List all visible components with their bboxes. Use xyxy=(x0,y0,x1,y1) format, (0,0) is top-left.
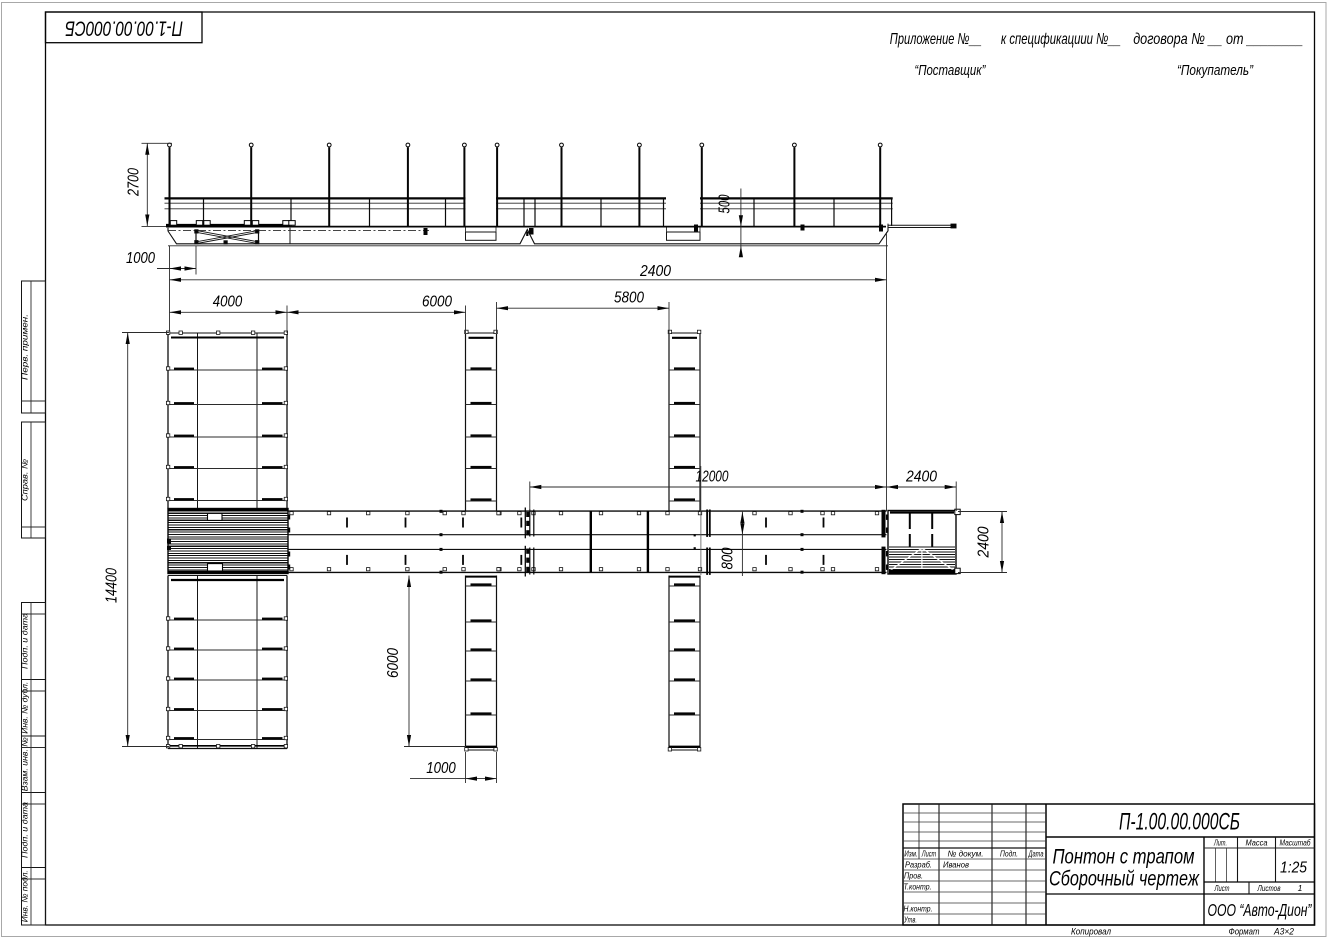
svg-text:Перв. примен.: Перв. примен. xyxy=(21,314,30,380)
svg-text:Т.контр.: Т.контр. xyxy=(904,882,932,892)
svg-text:2700: 2700 xyxy=(126,168,143,197)
svg-text:Масса: Масса xyxy=(1246,838,1268,848)
svg-text:Формат: Формат xyxy=(1229,927,1260,937)
svg-text:1000: 1000 xyxy=(426,760,456,777)
svg-text:“Поставщик”: “Поставщик” xyxy=(914,62,986,79)
svg-text:Листов: Листов xyxy=(1257,883,1281,893)
svg-text:12000: 12000 xyxy=(696,468,729,485)
svg-text:Утв.: Утв. xyxy=(903,915,917,925)
svg-text:договора № __ от ________: договора № __ от ________ xyxy=(1133,31,1303,48)
svg-text:Лист: Лист xyxy=(1214,883,1230,893)
svg-text:4000: 4000 xyxy=(213,293,243,310)
svg-text:1000: 1000 xyxy=(126,250,155,267)
svg-text:2400: 2400 xyxy=(639,263,671,280)
svg-text:Дата: Дата xyxy=(1028,849,1044,859)
svg-text:Взам. инв. №: Взам. инв. № xyxy=(21,737,30,791)
svg-text:Инв. № подл.: Инв. № подл. xyxy=(21,870,30,922)
svg-text:Пров.: Пров. xyxy=(904,871,923,881)
svg-text:П-1.00.00.000СБ: П-1.00.00.000СБ xyxy=(1119,809,1240,836)
svg-text:Изм.: Изм. xyxy=(904,849,918,859)
svg-text:2400: 2400 xyxy=(976,526,993,558)
svg-text:2400: 2400 xyxy=(905,468,937,485)
svg-text:№ докум.: № докум. xyxy=(948,849,984,859)
svg-text:Инв. № дубл.: Инв. № дубл. xyxy=(21,682,30,734)
svg-text:Справ. №: Справ. № xyxy=(21,459,30,501)
svg-text:Приложение №__: Приложение №__ xyxy=(890,31,982,48)
svg-text:Сборочный чертеж: Сборочный чертеж xyxy=(1049,868,1200,891)
svg-text:Подп. и дата: Подп. и дата xyxy=(21,801,30,858)
svg-text:Лист: Лист xyxy=(921,849,936,859)
svg-text:Понтон с трапом: Понтон с трапом xyxy=(1053,846,1195,869)
svg-text:к спецификациии №__: к спецификациии №__ xyxy=(1001,31,1121,48)
svg-text:6000: 6000 xyxy=(422,293,452,310)
svg-text:Разраб.: Разраб. xyxy=(905,860,932,870)
svg-text:Лит.: Лит. xyxy=(1213,838,1227,848)
svg-text:Иванов: Иванов xyxy=(943,860,970,870)
svg-text:“Покупатель”: “Покупатель” xyxy=(1177,62,1254,79)
svg-text:500: 500 xyxy=(717,194,734,213)
svg-text:Копировал: Копировал xyxy=(1071,927,1111,937)
svg-text:1:25: 1:25 xyxy=(1280,860,1307,877)
svg-text:5800: 5800 xyxy=(614,289,644,306)
svg-text:Подп. и дата: Подп. и дата xyxy=(21,612,30,669)
svg-text:П-1.00.00.000СБ: П-1.00.00.000СБ xyxy=(65,17,183,40)
svg-text:14400: 14400 xyxy=(104,568,121,603)
svg-text:А3×2: А3×2 xyxy=(1273,927,1294,937)
svg-text:Масштаб: Масштаб xyxy=(1280,838,1312,848)
svg-text:1: 1 xyxy=(1298,883,1303,893)
svg-text:Н.контр.: Н.контр. xyxy=(904,904,933,914)
svg-text:ООО “Авто-Дион”: ООО “Авто-Дион” xyxy=(1208,900,1313,920)
svg-text:6000: 6000 xyxy=(385,648,402,678)
svg-text:800: 800 xyxy=(720,547,737,569)
svg-text:Подп.: Подп. xyxy=(1000,849,1018,859)
